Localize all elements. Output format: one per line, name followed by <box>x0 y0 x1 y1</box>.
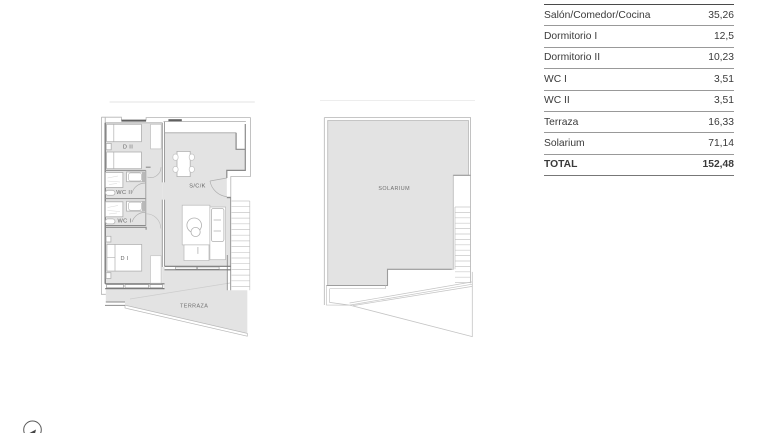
svg-text:D I: D I <box>121 256 129 262</box>
svg-text:S/C/K: S/C/K <box>189 184 206 190</box>
svg-text:WC I: WC I <box>118 219 132 225</box>
svg-text:SOLARIUM: SOLARIUM <box>378 186 410 192</box>
svg-text:TERRAZA: TERRAZA <box>180 304 208 310</box>
svg-text:D II: D II <box>123 144 133 150</box>
svg-text:WC II: WC II <box>116 190 132 196</box>
